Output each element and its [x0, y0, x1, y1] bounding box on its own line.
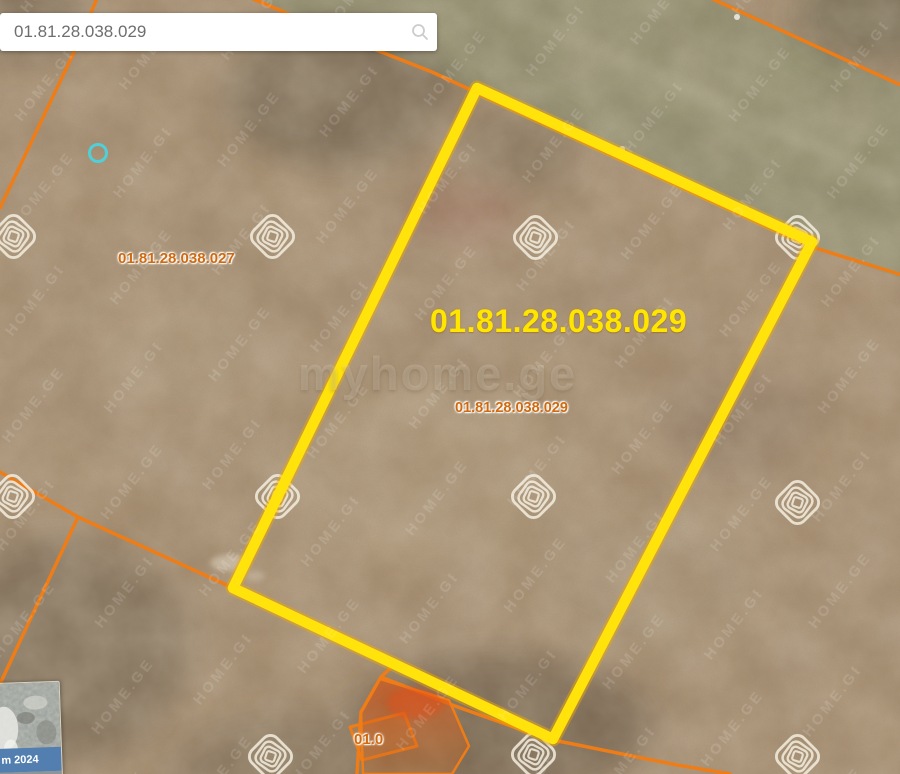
search-input[interactable]: [0, 22, 403, 42]
basemap-switcher[interactable]: m 2024: [0, 681, 63, 774]
search-bar: [0, 13, 437, 51]
tiled-watermark-overlay: [0, 0, 900, 774]
map-viewer: HOME.GE HOME.GE: [0, 0, 900, 774]
basemap-year-label: m 2024: [0, 747, 62, 773]
map-canvas[interactable]: HOME.GE HOME.GE: [0, 0, 900, 774]
search-icon[interactable]: [403, 15, 437, 49]
